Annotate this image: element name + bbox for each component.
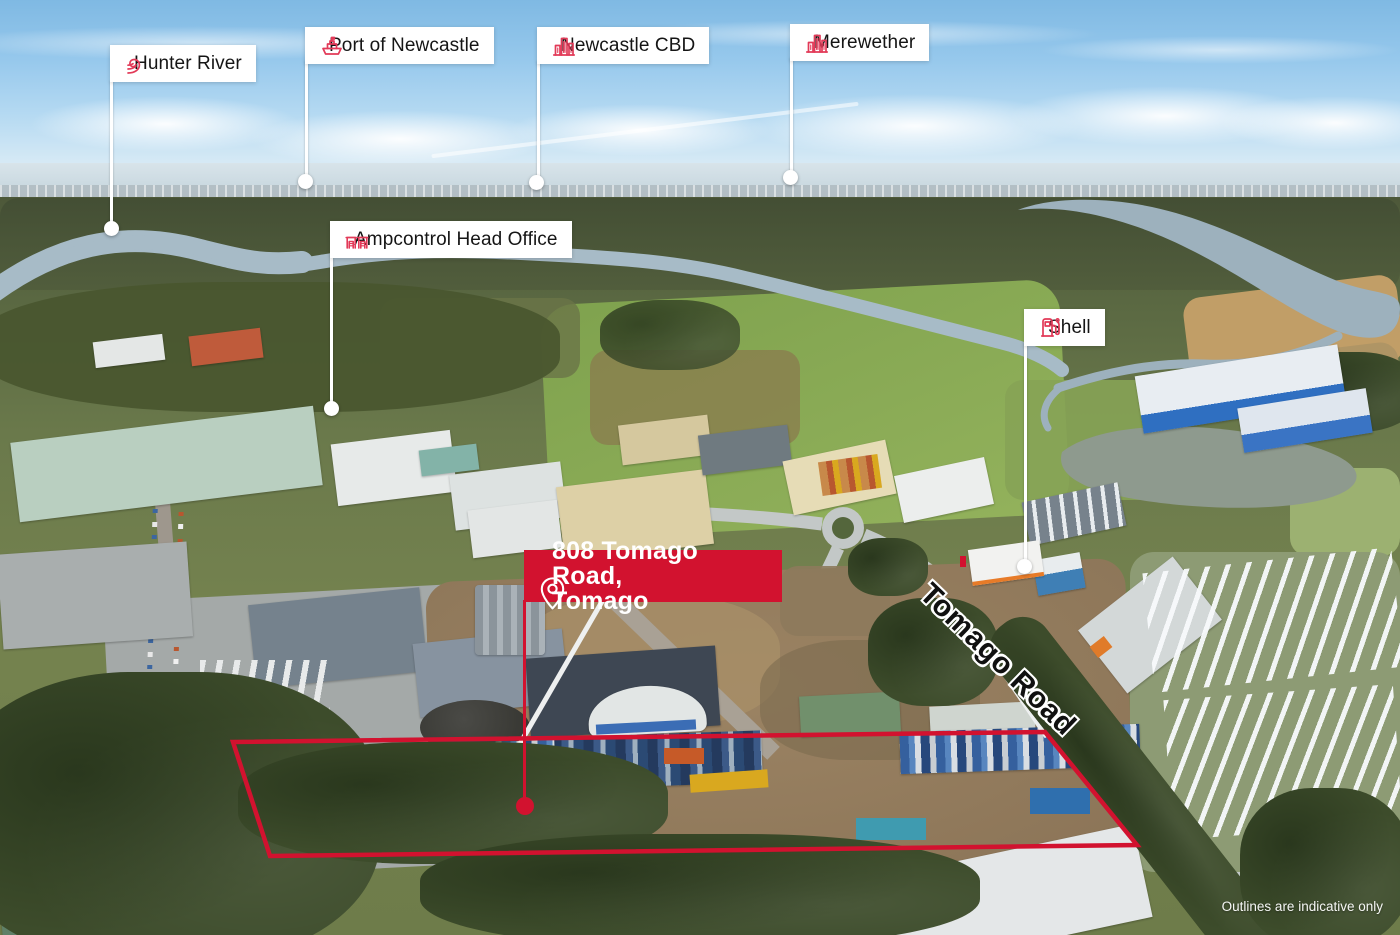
leader-line-hunter-river <box>110 81 113 228</box>
marker-dot-port-of-newcastle <box>298 174 313 189</box>
property-outline-polygon <box>233 732 1137 856</box>
label-text: Port of Newcastle <box>329 35 480 57</box>
property-marker-dot <box>516 797 534 815</box>
marker-dot-hunter-river <box>104 221 119 236</box>
disclaimer-text: Outlines are indicative only <box>1222 899 1383 914</box>
marker-dot-ampcontrol <box>324 401 339 416</box>
address-line-1: 808 Tomago Road, <box>552 539 767 589</box>
property-address: 808 Tomago Road, Tomago <box>552 539 767 614</box>
label-merewether: Merewether <box>790 24 929 61</box>
marker-dot-newcastle-cbd <box>529 175 544 190</box>
label-text: Hunter River <box>134 53 242 75</box>
label-text: Newcastle CBD <box>561 35 695 57</box>
label-ampcontrol-head-office: Ampcontrol Head Office <box>330 221 572 258</box>
label-text: Ampcontrol Head Office <box>354 229 558 251</box>
label-newcastle-cbd: Newcastle CBD <box>537 27 709 64</box>
property-leader-line <box>523 600 526 806</box>
leader-line-merewether <box>790 58 793 178</box>
marker-dot-shell <box>1017 559 1032 574</box>
leader-line-ampcontrol <box>330 254 333 409</box>
label-hunter-river: Hunter River <box>110 45 256 82</box>
label-shell: Shell <box>1024 309 1105 346</box>
property-boundary-outline <box>0 0 1400 935</box>
aerial-property-marketing-image: Hunter River Port of Newcastle Newcastle… <box>0 0 1400 935</box>
label-port-of-newcastle: Port of Newcastle <box>305 27 494 64</box>
property-address-badge: 808 Tomago Road, Tomago <box>524 550 782 602</box>
marker-dot-merewether <box>783 170 798 185</box>
address-line-2: Tomago <box>552 589 767 614</box>
leader-line-port-of-newcastle <box>305 61 308 182</box>
leader-line-shell <box>1024 343 1027 567</box>
leader-line-newcastle-cbd <box>537 61 540 183</box>
